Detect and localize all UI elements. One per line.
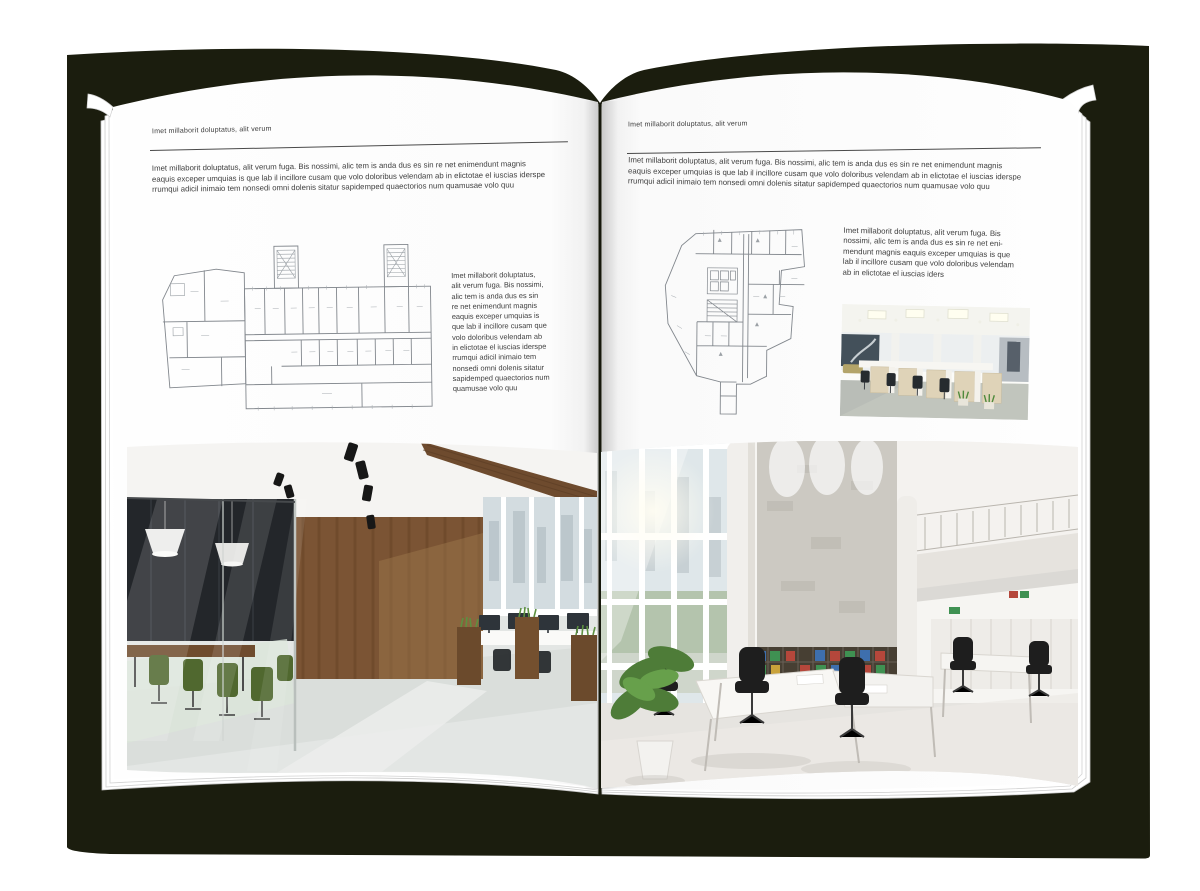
magazine-mockup: Imet millaborit doluptatus, alit verum I… [0, 0, 1200, 891]
right-floor-plan [654, 225, 808, 418]
right-office-photo [601, 441, 1078, 791]
left-intro-paragraph: Imet millaborit doluptatus, alit verum f… [152, 158, 614, 195]
small-office-photo [840, 304, 1030, 420]
right-page-header: Imet millaborit doluptatus, alit verum [628, 120, 748, 128]
left-office-photo [127, 441, 597, 791]
left-side-column: Imet millaborit doluptatus, alit verum f… [451, 269, 605, 395]
right-side-column: Imet millaborit doluptatus, alit verum f… [842, 226, 1055, 282]
left-floor-plan [160, 236, 438, 416]
